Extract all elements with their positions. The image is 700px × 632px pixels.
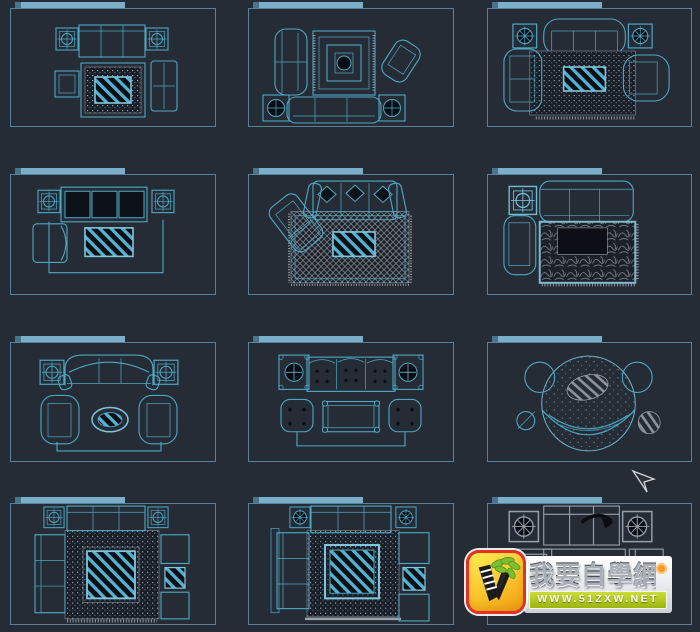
sofa-set-drawing-5 <box>249 175 453 294</box>
cad-block-cell-1 <box>10 8 216 127</box>
cad-block-cell-11 <box>248 503 454 625</box>
watermark-url: WWW.51ZXW.NET <box>529 591 667 609</box>
sofa-set-drawing-7 <box>11 343 215 461</box>
sofa-set-drawing-9 <box>488 343 691 461</box>
sofa-set-drawing-1 <box>11 9 215 126</box>
cad-canvas: 我要自學網 WWW.51ZXW.NET <box>0 0 700 632</box>
watermark-logo: 我要自學網 WWW.51ZXW.NET <box>466 550 674 618</box>
cad-block-cell-5 <box>248 174 454 295</box>
sofa-set-drawing-8 <box>249 343 453 461</box>
watermark-title: 我要自學網 <box>529 556 656 592</box>
sofa-set-drawing-10 <box>11 504 215 624</box>
cad-block-cell-10 <box>10 503 216 625</box>
sofa-set-drawing-11 <box>249 504 453 624</box>
cad-block-cell-2 <box>248 8 454 127</box>
watermark-box: 我要自學網 WWW.51ZXW.NET <box>524 556 672 613</box>
cad-block-cell-9 <box>487 342 692 462</box>
cad-block-cell-7 <box>10 342 216 462</box>
cad-block-cell-8 <box>248 342 454 462</box>
cad-block-cell-3 <box>487 8 692 127</box>
cursor-arrow-icon <box>630 468 658 496</box>
at-badge-icon <box>656 563 667 574</box>
sofa-set-drawing-6 <box>488 175 691 294</box>
sofa-set-drawing-2 <box>249 9 453 126</box>
cad-block-cell-6 <box>487 174 692 295</box>
cad-block-cell-4 <box>10 174 216 295</box>
sofa-set-drawing-3 <box>488 9 691 126</box>
sofa-set-drawing-4 <box>11 175 215 294</box>
site-logo-icon <box>466 550 526 614</box>
logo-v-plant-icon <box>469 553 523 611</box>
